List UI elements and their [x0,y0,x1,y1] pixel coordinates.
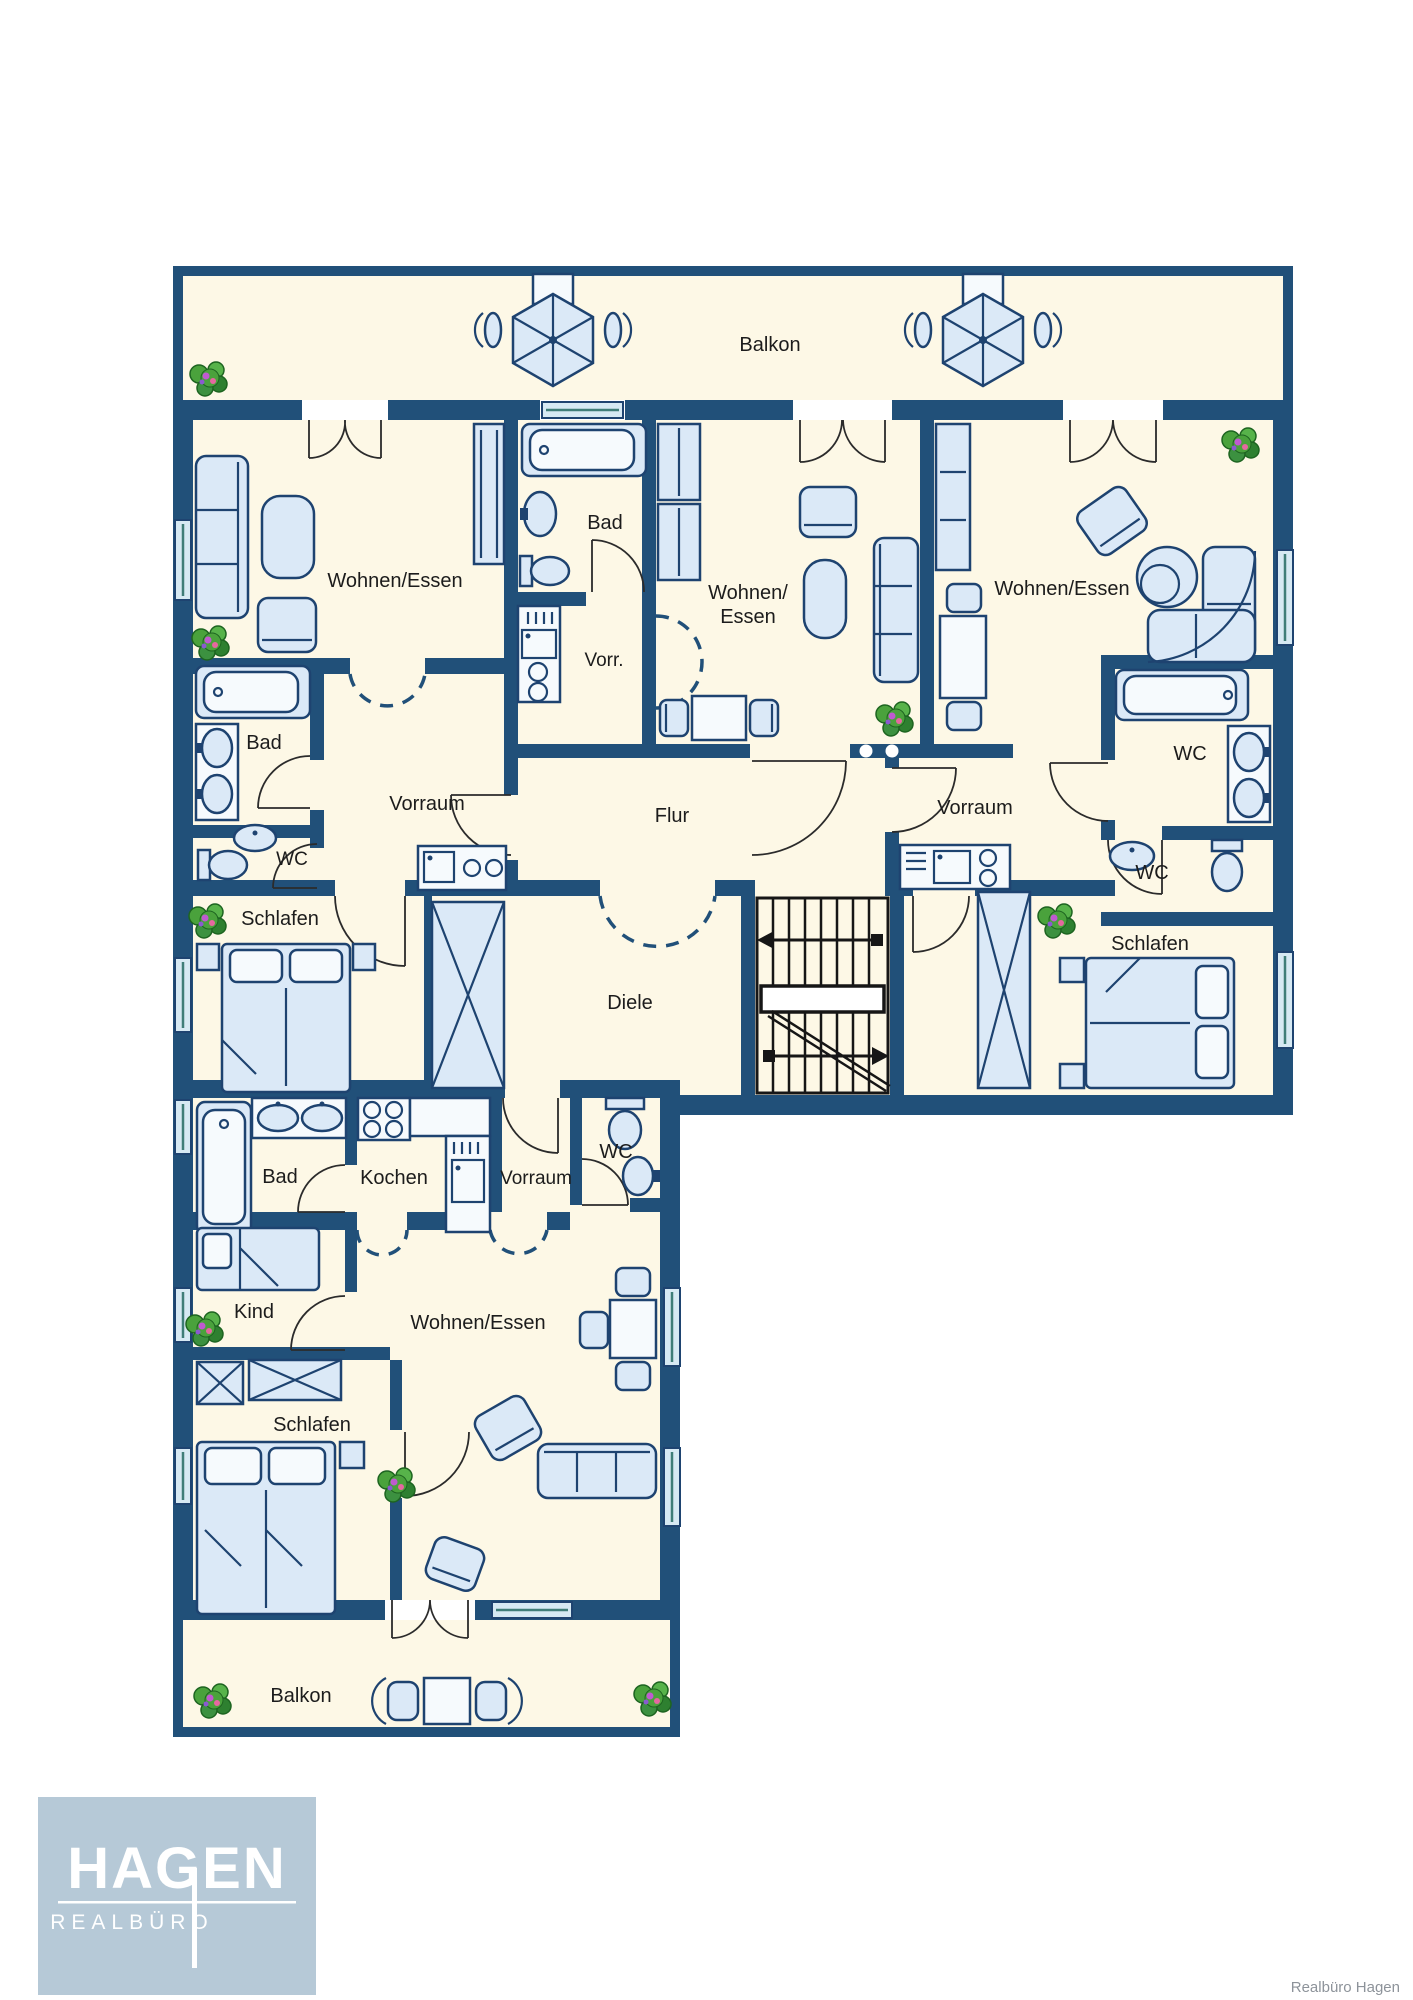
room-label-schlafen-right: Schlafen [1111,933,1189,955]
room-label-kochen: Kochen [360,1167,428,1189]
bathtub-icon [522,424,646,476]
toilet-icon [1212,840,1242,891]
wardrobe-icon [936,424,970,570]
kitchenette-icon [518,606,560,702]
room-label-schlafen-left: Schlafen [241,908,319,930]
window-icon [175,958,191,1032]
window-icon [542,402,623,418]
wardrobe-icon [978,892,1030,1088]
room-label-balkon-top: Balkon [739,334,800,356]
room-label-wohnen-essen-right: Wohnen/Essen [994,578,1129,600]
wardrobe-icon [197,1362,243,1404]
sofa-icon [196,456,248,618]
window-icon [1277,550,1293,645]
table-icon [424,1678,470,1724]
kitchenette-icon [418,846,506,890]
room-label-schlafen-lower: Schlafen [273,1414,351,1436]
window-icon [1277,952,1293,1048]
room-label-wohnen-essen-mid-1: Wohnen/ [708,582,788,604]
armchair-icon [800,487,856,537]
kitchenette-icon [900,845,1010,889]
room-label-wohnen-essen-mid-2: Essen [720,606,776,628]
window-icon [664,1288,680,1366]
bathtub-icon [1116,670,1248,720]
room-label-wc-right-lower: WC [1135,862,1168,884]
coffee-table-icon [262,496,314,578]
door-spot [886,745,899,758]
room-label-wohnen-essen-lower: Wohnen/Essen [410,1312,545,1334]
armchair-icon [258,598,316,652]
logo-subtitle: REALBÜRO [50,1911,214,1934]
toilet-icon [198,850,247,880]
window-icon [664,1448,680,1526]
sofa-icon [874,538,918,682]
room-label-vorr: Vorr. [584,650,623,671]
balcony-top-floor [183,276,1283,400]
logo: HAGEN REALBÜRO [38,1797,316,1995]
window-icon [175,1448,191,1504]
bathtub-icon [197,1102,251,1234]
wardrobe-icon [432,902,504,1088]
room-label-bad-top: Bad [587,512,623,534]
room-label-wohnen-essen-left: Wohnen/Essen [327,570,462,592]
window-icon [175,1288,191,1342]
sink-icon [196,724,238,820]
floor-plan-page: Balkon Wohnen/Essen Bad Wohnen/ Essen Wo… [0,0,1413,2000]
double-bed-icon [197,944,375,1092]
room-label-vorraum-left: Vorraum [389,793,465,815]
round-chair-icon [1137,547,1197,607]
sofa-icon [538,1444,656,1498]
logo-divider [58,1901,296,1904]
room-label-wc-lower: WC [599,1141,632,1163]
door-spot [860,745,873,758]
room-label-kind: Kind [234,1301,274,1323]
dining-set-icon [940,584,986,730]
wardrobe-icon [249,1360,341,1400]
room-label-diele: Diele [607,992,653,1014]
single-bed-icon [197,1228,319,1290]
sink-icon [252,1098,346,1138]
logo-name: HAGEN [67,1836,286,1901]
sink-icon [1228,726,1271,822]
wardrobe-icon [474,424,504,564]
toilet-icon [520,556,569,586]
room-label-bad-left: Bad [246,732,282,754]
room-label-flur: Flur [655,805,690,827]
stove-icon [358,1098,410,1140]
floor-plan: Balkon Wohnen/Essen Bad Wohnen/ Essen Wo… [0,0,1413,2000]
window-icon [175,1100,191,1154]
room-label-bad-lower: Bad [262,1166,298,1188]
table-icon [804,560,846,638]
room-label-vorraum-lower: Vorraum [500,1168,572,1189]
bathtub-icon [196,666,310,718]
room-label-wc-right-upper: WC [1173,743,1206,765]
window-icon [175,520,191,600]
sink-icon [234,825,276,851]
double-bed-icon [1060,958,1234,1088]
room-label-wc-left: WC [276,849,308,870]
wardrobe-icon [658,424,700,500]
room-label-balkon-bottom: Balkon [270,1685,331,1707]
wardrobe-icon [658,504,700,580]
dining-set-icon [660,696,778,740]
room-label-vorraum-right: Vorraum [937,797,1013,819]
credit-text: Realbüro Hagen [1291,1979,1400,1996]
window-icon [492,1602,572,1618]
